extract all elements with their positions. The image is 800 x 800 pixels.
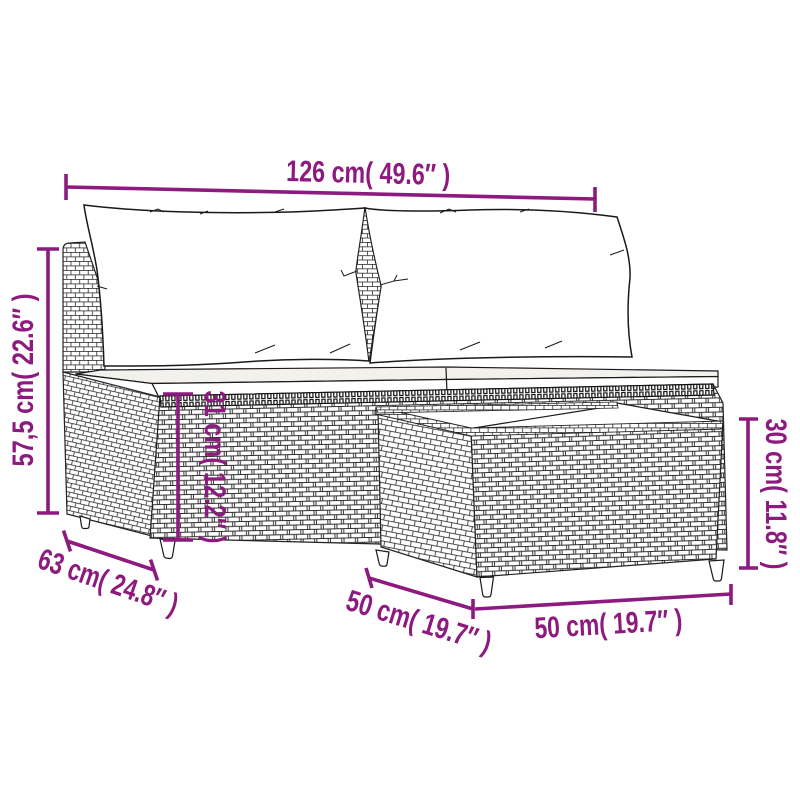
svg-text:30 cm( 11.8″ ): 30 cm( 11.8″ ) — [759, 419, 792, 570]
svg-text:57,5 cm( 22.6″ ): 57,5 cm( 22.6″ ) — [7, 294, 40, 467]
svg-text:126 cm( 49.6″ ): 126 cm( 49.6″ ) — [286, 155, 451, 192]
svg-text:31 cm( 12.2″ ): 31 cm( 12.2″ ) — [198, 391, 231, 544]
